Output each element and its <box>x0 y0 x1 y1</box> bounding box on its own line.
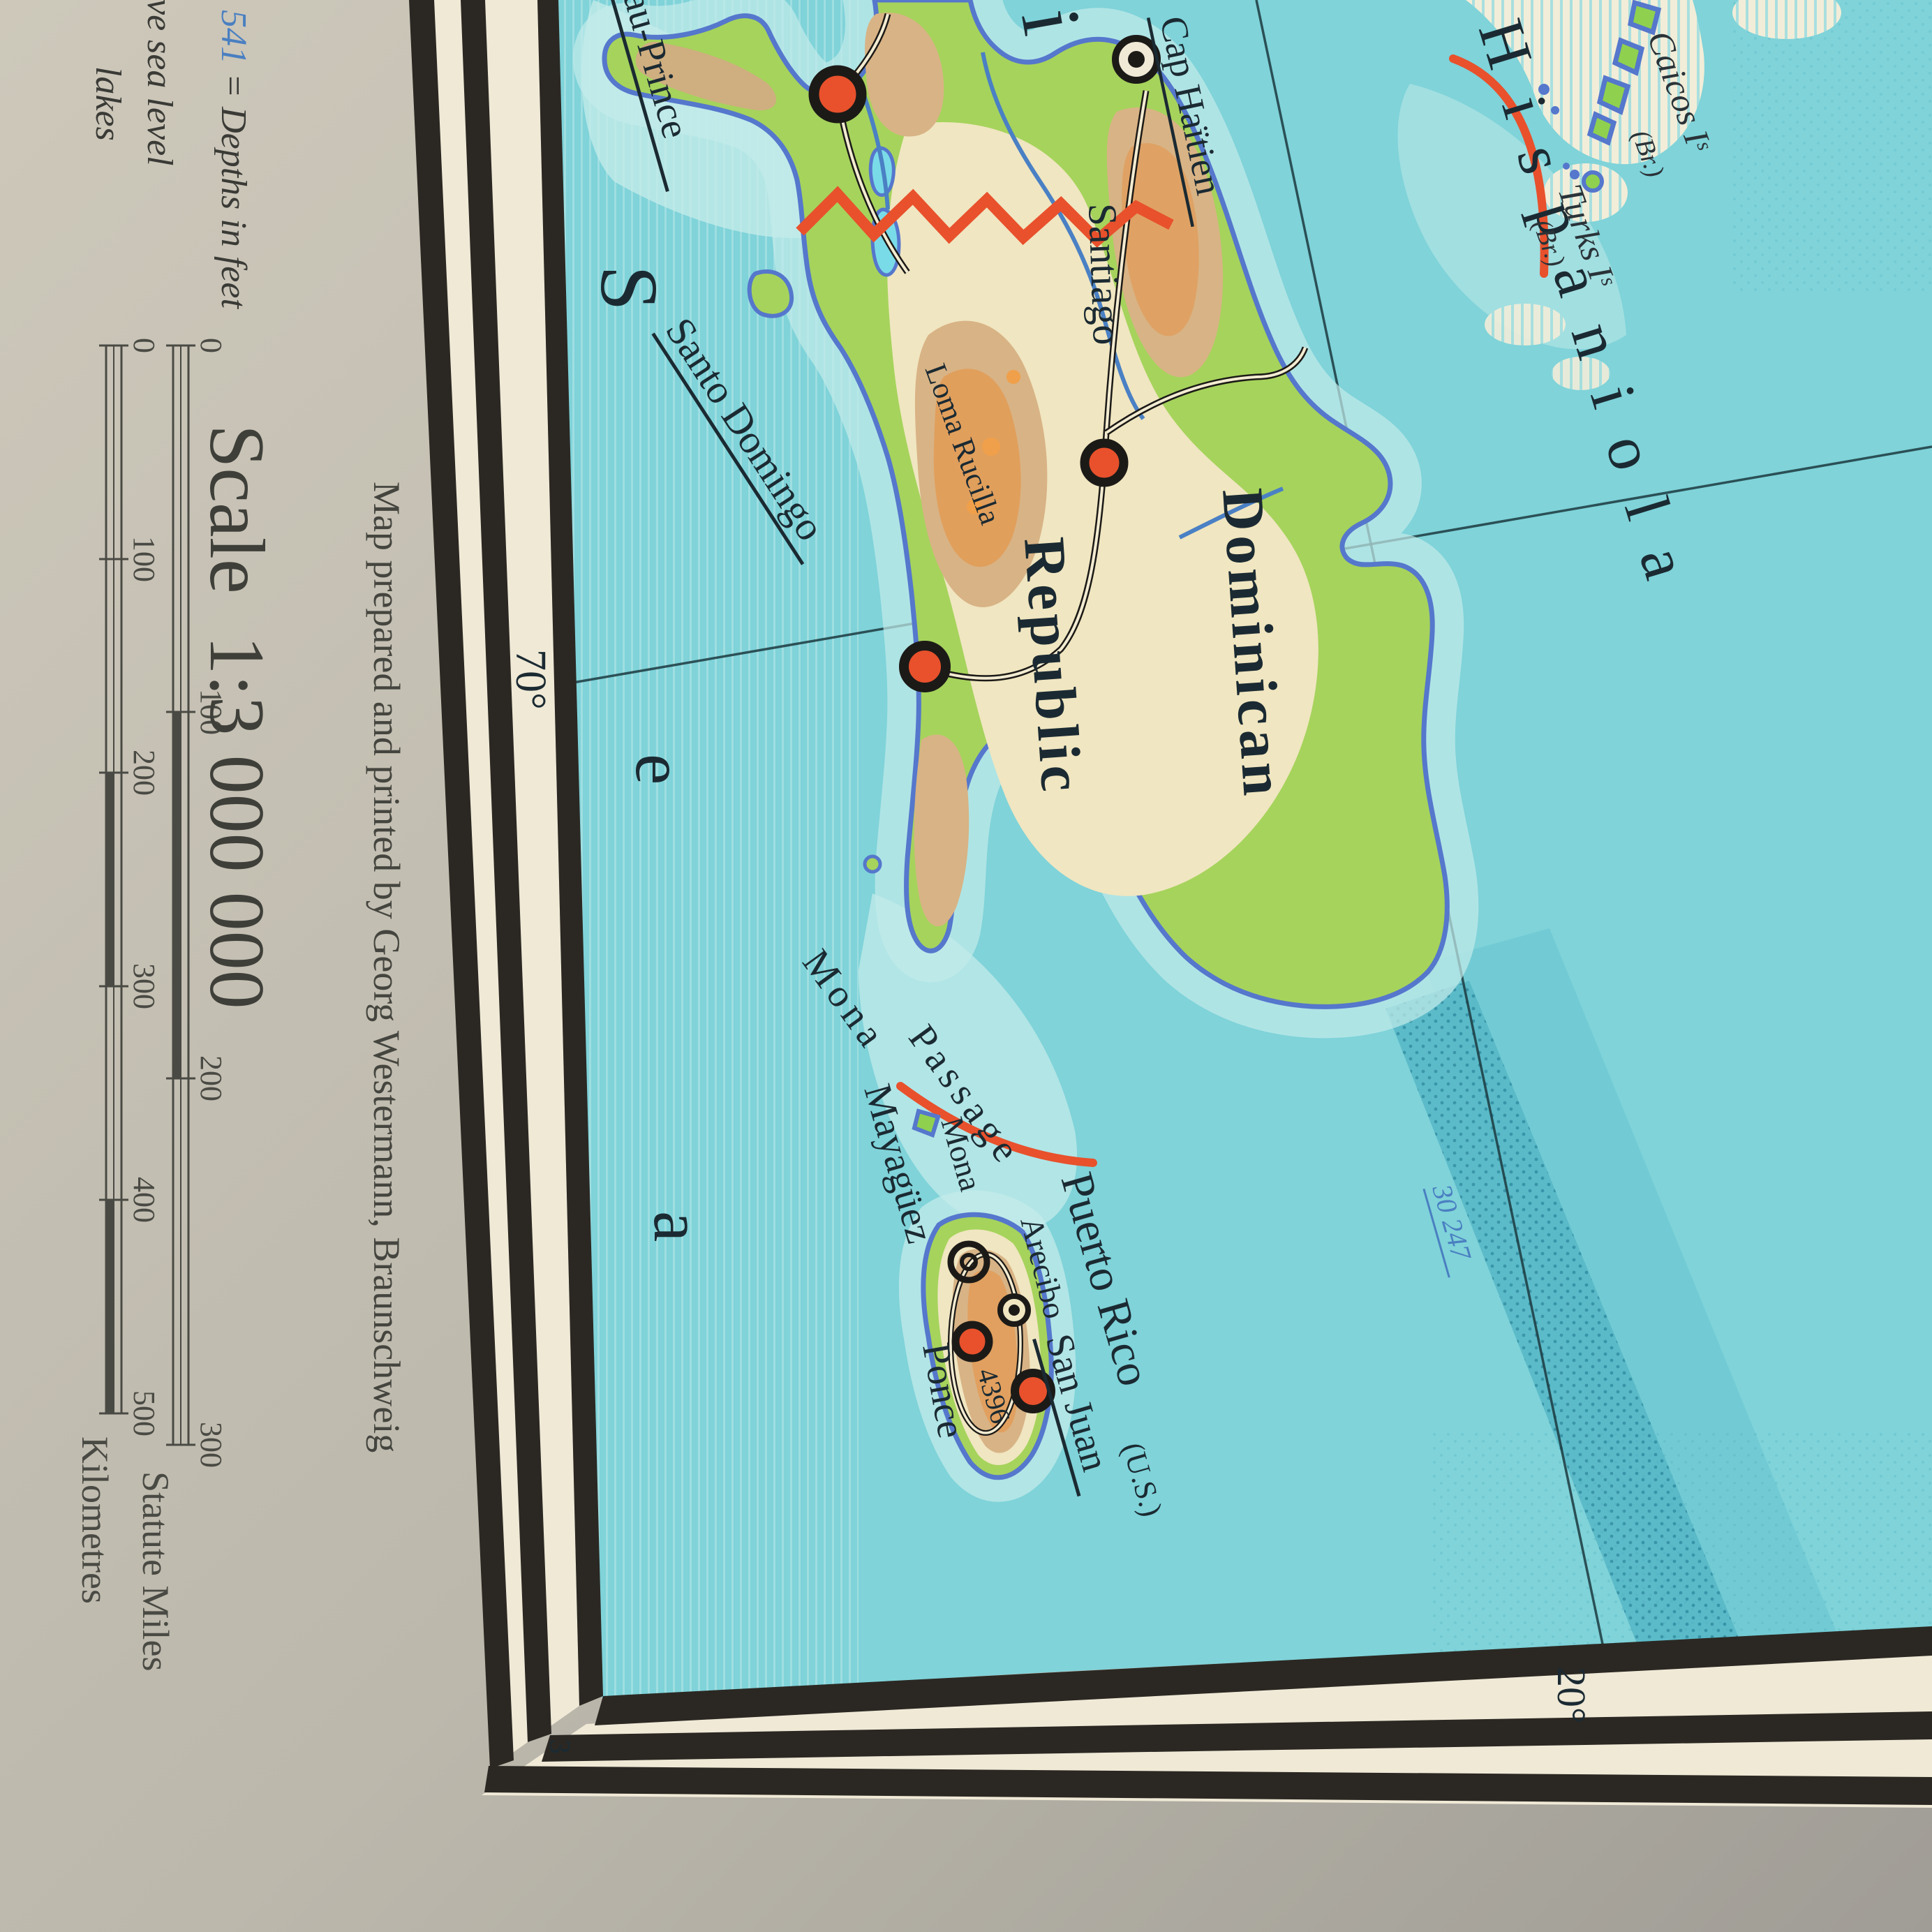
svg-text:Santiago: Santiago <box>1080 202 1130 345</box>
deep-texture-ne <box>1731 0 1932 293</box>
map-window: Hispaniola ti Dominican Republic au-Prin… <box>489 0 1932 1731</box>
svg-text:300: 300 <box>127 963 161 1009</box>
svg-text:100: 100 <box>127 536 161 582</box>
scale-heading: Scale1:3 000 000 <box>193 424 280 1009</box>
svg-text:S: S <box>584 265 675 311</box>
sheet-number: 3 <box>543 1739 575 1754</box>
gonave-island <box>750 272 792 316</box>
frame-label-20: 20° <box>1549 1667 1594 1723</box>
label-sea-a: a <box>639 1211 717 1242</box>
miles-bar-label: Statute Miles <box>135 1471 177 1671</box>
svg-text:70°: 70° <box>507 649 554 710</box>
svg-text:Kilometres: Kilometres <box>74 1436 116 1604</box>
svg-text:Map prepared and printed by Ge: Map prepared and printed by Georg Wester… <box>366 482 408 1452</box>
santo-domingo-symbol <box>904 646 946 688</box>
ponce-symbol <box>956 1325 989 1358</box>
legend-lakes-line: lakes <box>88 66 128 141</box>
svg-text:e: e <box>621 754 699 785</box>
svg-text:200: 200 <box>127 750 161 796</box>
svg-text:above sea level: above sea level <box>140 0 179 166</box>
frame-label-70: 70° <box>507 649 554 710</box>
santiago-symbol <box>1085 443 1124 482</box>
photo-of-wall-map: Hispaniola ti Dominican Republic au-Prin… <box>0 0 1932 1932</box>
legend-height-line: above sea level <box>140 0 179 166</box>
beata-island <box>865 856 880 872</box>
svg-text:0: 0 <box>127 338 161 353</box>
svg-text:0: 0 <box>194 338 228 353</box>
svg-text:300: 300 <box>194 1422 228 1468</box>
label-sea-s: S <box>584 265 675 311</box>
svg-text:lakes: lakes <box>88 66 128 141</box>
km-bar-label: Kilometres <box>74 1436 116 1604</box>
arecibo-symbol <box>1000 1296 1028 1324</box>
label-sea-e: e <box>621 754 699 785</box>
svg-text:3: 3 <box>543 1739 575 1754</box>
legend-depths-line: 2 541 = Depths in feet <box>214 0 253 309</box>
svg-text:Scale1:3 000 000: Scale1:3 000 000 <box>193 424 280 1009</box>
imprint: Map prepared and printed by Georg Wester… <box>366 482 408 1452</box>
cap-haitien-symbol <box>1115 38 1157 80</box>
svg-text:500: 500 <box>127 1390 161 1436</box>
svg-text:a: a <box>639 1211 717 1242</box>
label-santiago: Santiago <box>1080 202 1130 345</box>
port-au-prince-symbol <box>814 70 861 118</box>
svg-text:400: 400 <box>127 1177 161 1223</box>
svg-text:200: 200 <box>194 1055 228 1101</box>
svg-text:20°: 20° <box>1549 1667 1594 1723</box>
svg-text:2 541 = Depths in feet: 2 541 = Depths in feet <box>214 0 253 309</box>
svg-text:Statute Miles: Statute Miles <box>135 1471 177 1671</box>
peak-dot-3 <box>1006 370 1020 384</box>
map-photo-canvas: Hispaniola ti Dominican Republic au-Prin… <box>0 0 1932 1932</box>
